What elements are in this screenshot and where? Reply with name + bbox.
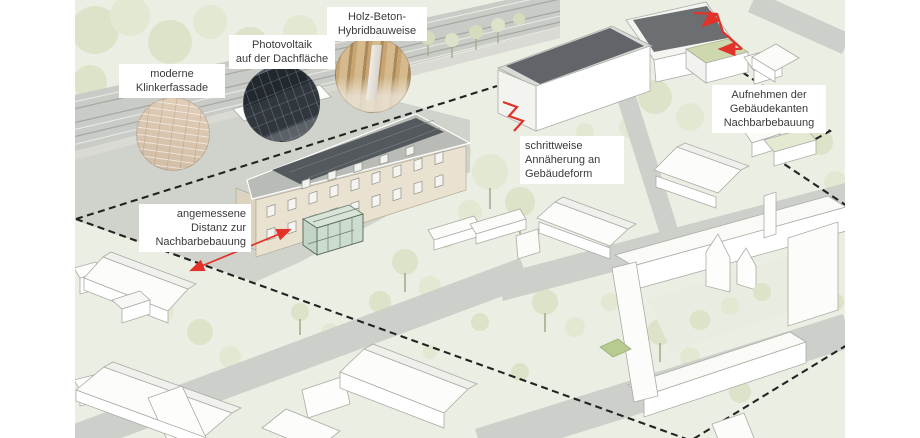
brick-facade-photo xyxy=(136,97,210,171)
timber-hybrid-photo xyxy=(335,37,411,113)
site-plan-figure: moderne Klinkerfassade Photovoltaik auf … xyxy=(0,0,920,438)
label-holzbeton: Holz-Beton- Hybridbauweise xyxy=(327,7,427,41)
label-distanz: angemessene Distanz zur Nachbarbebauung xyxy=(139,204,251,252)
label-klinkerfassade: moderne Klinkerfassade xyxy=(119,64,225,98)
label-photovoltaik: Photovoltaik auf der Dachfläche xyxy=(229,35,335,69)
label-schrittweise: schrittweise Annäherung an Gebäudeform xyxy=(520,136,624,184)
label-gebaeudekanten: Aufnehmen der Gebäudekanten Nachbarbebau… xyxy=(712,85,826,133)
solar-roof-photo xyxy=(243,65,320,142)
